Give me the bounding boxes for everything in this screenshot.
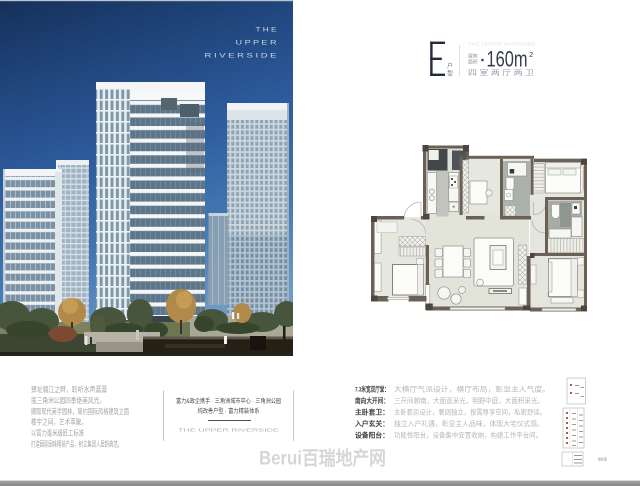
svg-text:揽三角洲公园四季绝美风光，: 揽三角洲公园四季绝美风光，: [31, 396, 105, 405]
svg-text:功能性阳台，设备集中安置收纳，构建工作平台间。: 功能性阳台，设备集中安置收纳，构建工作平台间。: [394, 431, 542, 440]
svg-text:主卧套房设计，奢阔独立，按需尊享空间，私密舒适。: 主卧套房设计，奢阔独立，按需尊享空间，私密舒适。: [394, 408, 546, 417]
svg-text:择址赣江之畔，聆听水声潺潺: 择址赣江之畔，聆听水声潺潺: [31, 385, 107, 394]
svg-text:大横厅气派设计，横厅布局，彰显主人气度。: 大横厅气派设计，横厅布局，彰显主人气度。: [394, 385, 550, 394]
svg-text:Berui百瑞地产网: Berui百瑞地产网: [259, 447, 386, 470]
svg-text:纯改善户型 · 富力精装体系: 纯改善户型 · 富力精装体系: [198, 407, 260, 415]
svg-text:富力&政企携手 · 三角洲城市中心 · 三角洲公园: 富力&政企携手 · 三角洲城市中心 · 三角洲公园: [176, 397, 281, 405]
svg-text:以富力毫米级匠工标准: 以富力毫米级匠工标准: [31, 429, 84, 438]
svg-text:打造园际园味精装产品，树立集团人居新典范。: 打造园际园味精装产品，树立集团人居新典范。: [31, 440, 122, 449]
svg-text:THE UPPER RIVERSIDE: THE UPPER RIVERSIDE: [178, 428, 279, 434]
svg-text:7.3米宽双厅堂：: 7.3米宽双厅堂：: [355, 385, 389, 394]
svg-text:南向大开间：: 南向大开间：: [355, 396, 389, 405]
svg-text:撷取现代美学园林，简约国际风格建筑立面: 撷取现代美学园林，简约国际风格建筑立面: [31, 407, 129, 416]
svg-text:主卧套卫：: 主卧套卫：: [355, 408, 389, 417]
svg-text:设备阳台：: 设备阳台：: [355, 431, 389, 440]
svg-text:入户玄关：: 入户玄关：: [355, 419, 389, 428]
svg-text:三开间朝南，大面宽采光，明野中庭，大面积采光。: 三开间朝南，大面宽采光，明野中庭，大面积采光。: [394, 396, 544, 405]
svg-text:独立入户礼遇，彰显主人品味，体现大宅仪式感。: 独立入户礼遇，彰显主人品味，体现大宅仪式感。: [394, 419, 544, 428]
svg-text:楼宇之间，艺术萃聚。: 楼宇之间，艺术萃聚。: [31, 418, 87, 427]
